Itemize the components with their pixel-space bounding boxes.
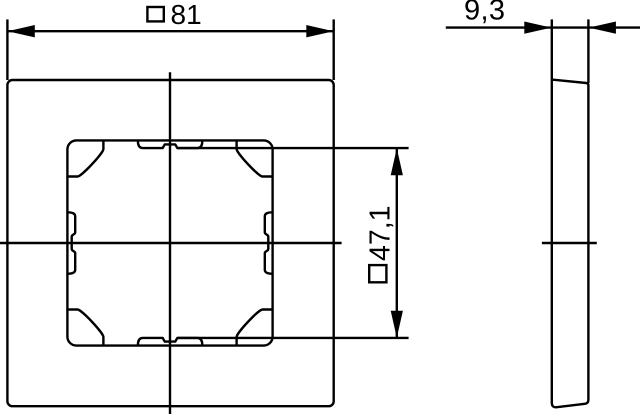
svg-text:81: 81: [171, 0, 202, 30]
svg-text:47,1: 47,1: [365, 206, 397, 261]
svg-text:9,3: 9,3: [464, 0, 506, 27]
